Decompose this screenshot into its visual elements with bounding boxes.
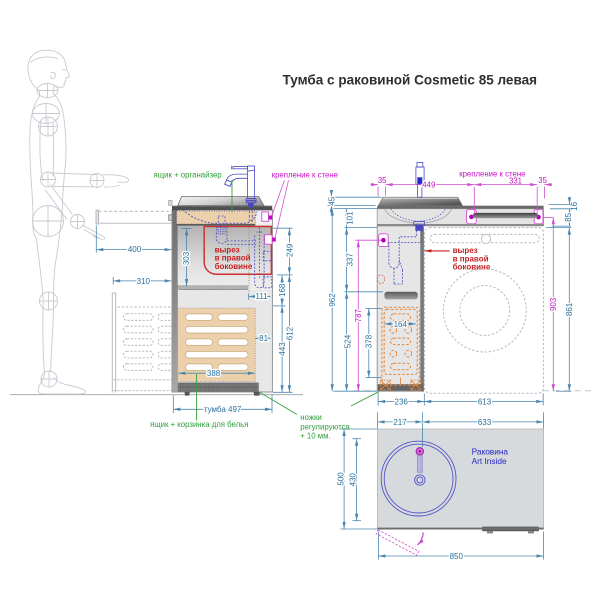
- svg-text:ящик + органайзер: ящик + органайзер: [154, 171, 223, 180]
- svg-text:Тумба с раковиной Cosmetic 85: Тумба с раковиной Cosmetic 85 левая: [283, 72, 538, 88]
- svg-text:388: 388: [207, 369, 221, 378]
- svg-text:612: 612: [285, 326, 294, 340]
- svg-text:81: 81: [259, 334, 268, 343]
- svg-text:16: 16: [570, 201, 579, 210]
- svg-text:85: 85: [564, 212, 573, 221]
- svg-text:310: 310: [137, 277, 151, 286]
- svg-text:ящик + корзинка для белья: ящик + корзинка для белья: [150, 420, 248, 429]
- svg-text:524: 524: [344, 334, 353, 348]
- svg-text:861: 861: [565, 302, 574, 316]
- svg-text:ножки: ножки: [300, 413, 322, 422]
- svg-text:236: 236: [395, 397, 409, 406]
- svg-text:850: 850: [450, 552, 464, 561]
- svg-text:217: 217: [393, 418, 407, 427]
- svg-text:378: 378: [365, 334, 374, 348]
- svg-text:101: 101: [346, 211, 355, 225]
- svg-text:443: 443: [278, 342, 287, 356]
- svg-text:+ 10 мм.: + 10 мм.: [300, 432, 330, 441]
- svg-text:430: 430: [349, 472, 358, 486]
- svg-text:регулируются: регулируются: [300, 422, 350, 431]
- svg-text:тумба 497: тумба 497: [204, 405, 242, 414]
- svg-text:303: 303: [182, 251, 191, 265]
- svg-text:45: 45: [327, 196, 336, 205]
- svg-text:крепление к стене: крепление к стене: [272, 171, 338, 180]
- svg-text:35: 35: [378, 176, 387, 185]
- svg-text:164: 164: [394, 320, 408, 329]
- svg-text:337: 337: [346, 252, 355, 266]
- svg-text:боковине: боковине: [215, 262, 253, 271]
- svg-text:боковине: боковине: [453, 263, 491, 272]
- svg-text:крепление к стене: крепление к стене: [459, 170, 525, 179]
- svg-text:249: 249: [285, 243, 294, 257]
- svg-text:35: 35: [538, 176, 547, 185]
- svg-text:903: 903: [549, 298, 558, 311]
- svg-text:962: 962: [328, 293, 337, 307]
- svg-text:787: 787: [354, 309, 363, 322]
- svg-text:633: 633: [478, 418, 492, 427]
- svg-text:111: 111: [256, 292, 269, 301]
- svg-text:168: 168: [278, 283, 287, 297]
- svg-text:613: 613: [478, 397, 492, 406]
- svg-text:449: 449: [422, 181, 435, 190]
- svg-text:500: 500: [337, 472, 346, 486]
- svg-text:400: 400: [128, 245, 142, 254]
- svg-text:Art Inside: Art Inside: [472, 456, 507, 466]
